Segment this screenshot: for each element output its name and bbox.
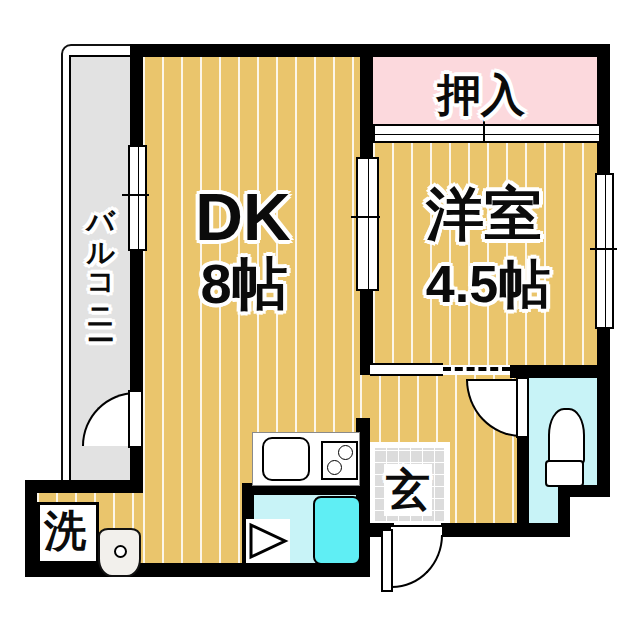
entrance-door-swing: [392, 535, 443, 588]
balcony-door-leaf: [128, 390, 143, 448]
wall-laundry-top: [25, 480, 143, 493]
wall-bottom-entry-right: [441, 523, 570, 537]
balcony-window: [128, 145, 147, 251]
stove-burner-icon: [338, 445, 353, 460]
balcony-label: バルコニー: [86, 189, 114, 326]
dk-room-size: 8帖: [200, 256, 287, 312]
stove-burner-icon: [327, 460, 342, 475]
closet-fusuma-door: [373, 124, 601, 143]
western-room-floor: [373, 135, 597, 365]
toilet-bowl-icon: [548, 408, 585, 466]
floor-plan: DK 8帖 洋室 4.5帖 押入 バルコニー 玄 洗: [0, 0, 640, 640]
basin-drain-icon: [114, 545, 127, 558]
fusuma-tick: [483, 120, 485, 143]
stove-icon: [321, 441, 358, 480]
kitchen-sink-icon: [262, 437, 310, 481]
window-glass-line: [138, 147, 140, 249]
open-boundary-dashed-line: [443, 367, 510, 371]
bath-folding-door: [246, 519, 290, 563]
wall-toilet-left: [517, 430, 529, 535]
dk-western-sliding-door: [356, 157, 379, 291]
western-window-tick: [590, 248, 617, 250]
bathtub-icon: [313, 496, 361, 565]
toilet-tank-icon: [545, 460, 584, 487]
wall-left-outer: [25, 480, 37, 577]
bath-door-triangle-icon: [246, 519, 290, 563]
western-room-size: 4.5帖: [426, 258, 550, 310]
western-room-label: 洋室: [426, 185, 542, 243]
entrance-door-leaf: [381, 529, 393, 592]
western-room-window: [595, 173, 614, 329]
fusuma-track-line: [375, 134, 599, 136]
sliding-door-track-line: [368, 159, 370, 289]
entrance-label: 玄: [386, 468, 430, 512]
sliding-door-tick: [351, 216, 380, 218]
western-room-opening: [370, 363, 443, 376]
dk-room-label: DK: [195, 184, 290, 250]
wash-basin-icon: [98, 528, 141, 577]
wall-bottom-left-block: [25, 563, 370, 577]
closet-label: 押入: [437, 73, 525, 117]
toilet-door-leaf: [516, 377, 529, 438]
window-glass-line: [605, 175, 607, 327]
balcony-window-tick: [122, 194, 149, 196]
laundry-label: 洗: [44, 510, 86, 552]
